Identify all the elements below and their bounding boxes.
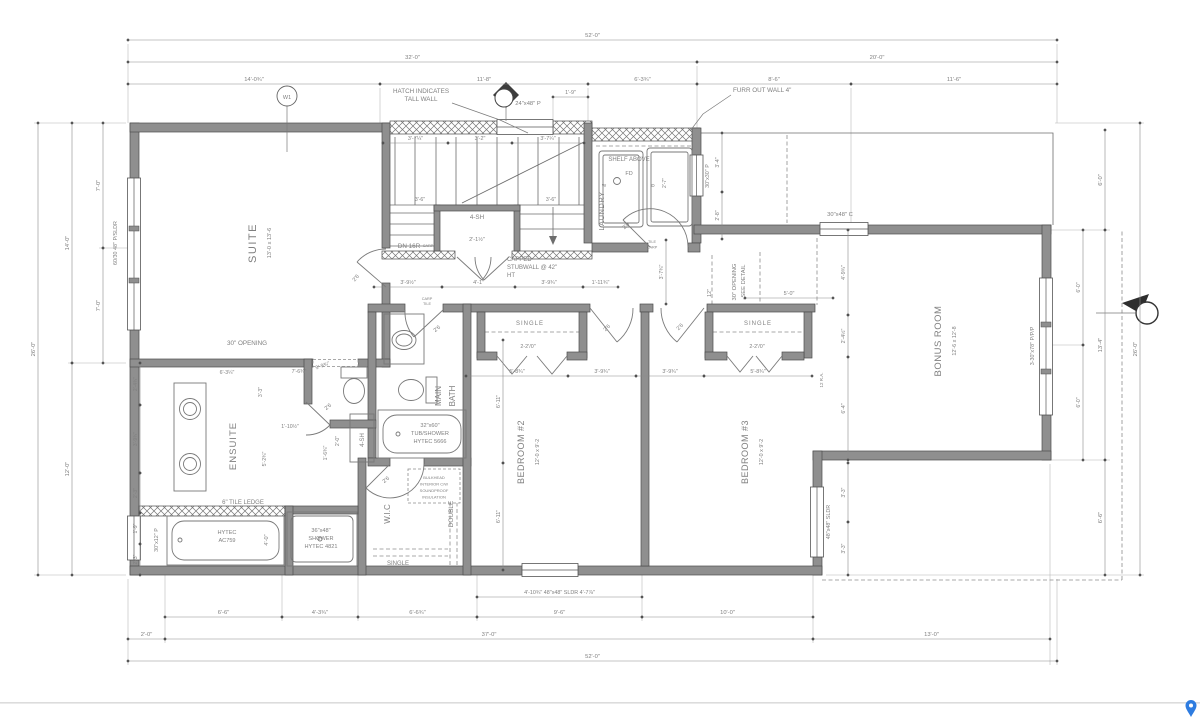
dim-label: 1'-9" <box>565 90 576 96</box>
tile-ledge <box>139 506 285 516</box>
window-stair <box>497 120 553 135</box>
dim-label: 26'-0" <box>1133 342 1139 357</box>
room-label-bedroom2: BEDROOM #2 <box>516 420 526 484</box>
dimension: 52'-0" <box>126 654 1058 662</box>
dimension: 5'-8¾" <box>464 369 569 377</box>
dim-label: 32'-0" <box>405 55 420 61</box>
room-label-wic: W.I.C <box>383 504 392 524</box>
dimension: 14'-0¾" <box>126 77 381 85</box>
dimension: 6'-0" <box>1076 228 1084 346</box>
dimension: 20'-0" <box>695 55 1058 63</box>
label-4sh-stair: 4-SH <box>470 214 485 221</box>
finish-carp-bath: CARP <box>422 297 433 301</box>
dim-label: 6'-0" <box>1076 282 1082 292</box>
door-label-wic: 2'6 <box>382 476 391 485</box>
dim-label: 6'-4" <box>841 403 847 413</box>
closet-label-single-bed3: SINGLE <box>744 321 772 327</box>
dim-label: 4'-10¾" 48"x48" SLDR 4'-7⅞" <box>524 590 595 596</box>
finish-carp-laundry: CARP <box>647 246 658 250</box>
stair-break-line <box>462 140 588 203</box>
dimension: 7'-0" <box>96 246 104 364</box>
fixture-tub-label-1: HYTEC <box>218 530 237 536</box>
dimension: 3'-3" <box>841 461 849 523</box>
dimension: 4'-9¾" <box>841 228 849 316</box>
dim-label: 6'-3¾" <box>634 77 650 83</box>
note-bonus-opening-2: -SEE DETAIL <box>741 264 747 300</box>
fixture-shower-label-1: 36"x48" <box>311 528 330 534</box>
dimension: 52'-0" <box>126 33 1058 41</box>
dim-ensuite-3: 7'-6¾" <box>292 369 307 375</box>
dim-tub-length: 4'-0" <box>264 534 270 545</box>
dimension: 5'-8¾" <box>702 369 813 377</box>
dimension: 3'-9¾" <box>513 280 584 288</box>
dimension: 6'-6¾" <box>356 610 478 618</box>
dim-label: 3'-9¾" <box>133 432 139 446</box>
dimension: 2'-4½" <box>840 313 849 358</box>
dim-label: 3'-7¼" <box>540 136 555 142</box>
room-label-main-bath-2: BATH <box>448 385 457 406</box>
dim-ensuite-1: 6'-3¼" <box>220 370 235 376</box>
note-capped-3: HT <box>507 273 515 279</box>
label-washer: W <box>602 183 607 188</box>
window-label-bonus-top: 30"x48" C <box>827 212 853 218</box>
dim-label: 2'-4½" <box>840 329 847 344</box>
label-4sh-ensuite: 4-SH <box>360 433 366 447</box>
dim-label: 2'-3" <box>133 554 139 564</box>
dim-label: 6'-6¾" <box>409 610 425 616</box>
dim-label: 6'-0" <box>1098 174 1104 186</box>
dim-label: 10'-0" <box>720 610 735 616</box>
dim-label: 2'-0" <box>141 632 153 638</box>
dim-stair-2: 3'-6" <box>546 197 556 203</box>
note-capped-1: CAPPED <box>507 257 532 263</box>
roof-outline <box>701 133 1053 225</box>
note-shelf-above: SHELF ABOVE <box>608 157 649 163</box>
window-label-tub: 30"x12" P <box>154 528 160 552</box>
dim-label: 8'-6" <box>768 77 780 83</box>
dim-label: 11'-6" <box>947 77 961 83</box>
dim-stair-1: 3'-6" <box>415 197 425 203</box>
fixture-shower-label-2: SHOWER <box>308 536 333 542</box>
dimension: 32'-0" <box>126 55 698 63</box>
dim-label: 3'-9¾" <box>662 369 677 375</box>
door-suite <box>357 249 386 287</box>
closet-doors-bed2: 2-2'/0" <box>520 344 535 350</box>
tall-wall-hatched <box>390 121 497 134</box>
dimension: 3'-4" <box>715 131 723 193</box>
dim-label: 6'-11" <box>496 395 502 408</box>
closet-label-single-wic: SINGLE <box>387 561 409 567</box>
dimension: 3'-9¾" <box>566 369 637 377</box>
dim-label: 5'-8¾" <box>750 369 765 375</box>
bifold-doors <box>497 356 782 374</box>
dimension: 6'-4" <box>841 355 849 461</box>
window-bed2-bottom <box>522 564 578 577</box>
dimension: 11'-6" <box>849 77 1058 85</box>
dimension: 9'-6" <box>475 610 643 618</box>
label-return-air: 12 R.A. <box>819 372 824 387</box>
room-label-laundry: LAUNDRY <box>597 191 606 230</box>
note-hatch-1: HATCH INDICATES <box>393 88 449 95</box>
dim-label: 13'-4" <box>1098 338 1104 353</box>
dimension: 7'-0" <box>96 121 104 249</box>
dimension: 3'-2" <box>446 136 513 144</box>
dim-label: 3'-4" <box>715 157 721 167</box>
room-size-bedroom3: 12'-0 x 9'-2 <box>759 439 765 465</box>
fixture-tubshower-label-2: TUB/SHOWER <box>411 431 449 437</box>
window-bonus-top <box>820 223 868 236</box>
note-hatch-2: TALL WALL <box>404 96 438 103</box>
room-size-suite: 13'-0 x 13'-6 <box>267 228 273 258</box>
dimension: 6'-6" <box>1098 458 1106 576</box>
window-label-stair: 24"x48" P <box>515 101 541 107</box>
room-label-main-bath-1: MAIN <box>434 386 443 406</box>
note-box-line-4: INSULATION <box>422 495 446 500</box>
fixture-tubshower-label-1: 32"x60" <box>420 423 439 429</box>
window-bed3 <box>811 487 824 557</box>
dimension: 3'-7¼" <box>381 136 449 144</box>
dim-label: 5'-8¾" <box>509 369 524 375</box>
tall-wall-hatched <box>592 128 700 141</box>
dimension: 26'-0" <box>31 121 39 576</box>
dim-label: 2'-3" <box>133 488 139 498</box>
dim-label: 7'-0" <box>96 180 102 192</box>
label-floor-drain: FD <box>625 171 632 177</box>
dim-label: 14'-0¾" <box>244 77 264 83</box>
dim-label: 4'-9¾" <box>841 265 847 280</box>
dim-label: 3'-3" <box>841 487 847 497</box>
dim-dryer-width: 2'-7" <box>662 178 668 188</box>
door-french-linen <box>457 257 509 280</box>
dimension: 3'-7¼" <box>510 136 585 144</box>
map-pin-icon[interactable] <box>1186 700 1197 717</box>
ensuite-toilet <box>341 367 367 404</box>
dim-ensuite-8: 1'-6¾" <box>323 446 329 461</box>
dim-label: 52'-0" <box>585 654 600 660</box>
floor-plan-sheet: 52'-0"32'-0"20'-0"14'-0¾"11'-8"6'-3¾"8'-… <box>0 0 1200 720</box>
note-30-opening: 30" OPENING <box>227 340 267 347</box>
dim-label: 37'-0" <box>482 632 497 638</box>
dim-label: 2'-8" <box>715 210 721 220</box>
finish-tile-laundry: TILE <box>648 240 656 244</box>
dimension: 6'-3¾" <box>586 77 698 85</box>
dim-label: 14'-0" <box>65 236 71 251</box>
dim-label: 3'-9¾" <box>594 369 609 375</box>
closet-label-double: DOUBLE <box>448 500 455 527</box>
window-suite <box>128 178 141 330</box>
dimension: 6'-0" <box>1076 343 1084 461</box>
note-furr: FURR OUT WALL 4" <box>733 87 791 94</box>
dimension: 4'-10¾" 48"x48" SLDR 4'-7⅞" <box>475 590 643 598</box>
dim-label: 6'-6" <box>1098 512 1104 524</box>
dimension: 1'-9" <box>551 90 589 98</box>
dim-label: 20'-0" <box>870 55 885 61</box>
dim-label: 6'-6" <box>218 610 230 616</box>
dim-ensuite-5: 1'-10½" <box>281 423 299 430</box>
door-label-suite: 2'6 <box>352 274 361 283</box>
dim-label: 13'-0" <box>924 632 939 638</box>
capped-stubwall <box>382 251 455 259</box>
text-labels: SUITE13'-0 x 13'-6ENSUITEMAINBATHW.I.CBE… <box>113 87 1036 567</box>
dimension: 10'-0" <box>640 610 814 618</box>
dimension: 13'-0" <box>811 632 1051 640</box>
finish-tile-bath: TILE <box>423 302 431 306</box>
door-bed2 <box>590 308 633 342</box>
door-label-bed3: 2'6 <box>676 323 685 332</box>
label-dryer: D <box>651 183 655 188</box>
label-dn-16r: DN 16R <box>398 243 421 250</box>
dim-ensuite-2: 3'-3" <box>258 387 264 397</box>
stairs <box>390 137 588 246</box>
dim-label: 4'-3¾" <box>312 610 328 616</box>
dimension: 8'-6" <box>695 77 852 85</box>
dimension: 1'-11¾" <box>581 280 619 288</box>
room-label-bedroom3: BEDROOM #3 <box>740 420 750 484</box>
fixture-tub-label-2: AC759 <box>218 538 235 544</box>
dimension: 26'-0" <box>1133 121 1141 576</box>
dimension: 11'-8" <box>378 77 589 85</box>
dim-label: 7'-0" <box>96 300 102 312</box>
dim-label: 3'-7¾" <box>659 265 665 280</box>
room-label-suite: SUITE <box>247 223 259 263</box>
dim-label: 4'-1" <box>473 280 484 286</box>
dim-ensuite-7: 2'-0" <box>335 436 341 446</box>
dim-label: 2'-4¾" <box>133 377 139 391</box>
dim-label: 3'-2" <box>475 136 486 142</box>
note-tile-ledge: 6" TILE LEDGE <box>222 500 264 506</box>
dimension: 4'-1" <box>440 280 516 288</box>
dim-label: 12'-0" <box>65 462 71 477</box>
note-capped-2: STUBWALL @ 42" <box>507 265 557 271</box>
note-box-line-3: SOUNDPROOF <box>420 488 449 493</box>
dim-label: 1'-9" <box>133 523 139 533</box>
finish-carp-stair: CARP <box>423 244 434 248</box>
dimension: 6'-11" <box>496 461 504 571</box>
floor-plan-canvas: 52'-0"32'-0"20'-0"14'-0¾"11'-8"6'-3¾"8'-… <box>0 0 1200 720</box>
dimension: 4'-3¾" <box>280 610 359 618</box>
note-bonus-opening-1: 30" OPENING <box>732 263 738 300</box>
bath-toilet <box>399 377 438 403</box>
dimension: 13'-4" <box>1098 228 1106 461</box>
dimension: 6'-0" <box>1098 128 1106 231</box>
note-box-line-2: INTERIOR C/W <box>420 482 448 487</box>
dim-label: 3'-9¾" <box>541 280 556 286</box>
dim-label: 11'-8" <box>477 77 491 83</box>
walls-interior <box>130 123 815 575</box>
dimension: 6'-6" <box>163 610 283 618</box>
door-label-bath: 2'6 <box>433 325 442 334</box>
dim-label: 5'-0" <box>784 291 795 297</box>
fixture-shower-label-3: HYTEC 4821 <box>305 544 338 550</box>
note-box-line-1: BULKHEAD <box>423 475 445 480</box>
sheet-edge-line <box>0 702 1200 704</box>
ensuite-vanity <box>174 383 206 491</box>
dimension: 37'-0" <box>163 632 814 640</box>
window-tub <box>128 516 141 560</box>
window-bonus-right <box>1040 278 1053 415</box>
dim-ensuite-6: 5'-2¾" <box>262 452 268 467</box>
dimension: 3'-7¾" <box>659 238 667 305</box>
dim-label: 3'-7¼" <box>408 136 423 142</box>
dim-label: 9'-6" <box>554 610 566 616</box>
dim-opening-12: 12" <box>707 289 713 297</box>
dim-label: 26'-0" <box>31 342 37 357</box>
room-size-bedroom2: 12'-0 x 9'-2 <box>535 439 541 465</box>
window-label-suite: 60/30 48" P/SLDR <box>113 221 119 265</box>
dim-label: 3'-9½" <box>400 279 415 286</box>
dim-label: 6'-0" <box>1076 397 1082 407</box>
window-label-bonus-right: 3-30"x78" P/P/P <box>1030 326 1036 365</box>
floor-drain <box>614 178 621 185</box>
room-label-bonus: BONUS ROOM <box>933 306 944 377</box>
dimension: 12'-0" <box>65 361 73 576</box>
dimension: 2'-0" <box>126 632 166 640</box>
room-size-bonus: 12'-6 x 12'-8 <box>952 326 958 355</box>
window-label-laundry: 30"x30" P <box>705 164 711 188</box>
fixture-tubshower-label-3: HYTEC 5666 <box>414 439 447 445</box>
closet-doors-bed3: 2-2'/0" <box>749 344 764 350</box>
dimension: 3'-3" <box>841 520 849 576</box>
door-label-wc: 2'6 <box>324 403 333 412</box>
room-label-ensuite: ENSUITE <box>228 422 239 470</box>
dimension: 14'-0" <box>65 121 73 364</box>
dim-label: 1'-11¾" <box>592 280 610 286</box>
window-label-bed3: 48"x48" SLDR <box>826 505 832 539</box>
dim-label: 6'-11" <box>496 510 502 523</box>
dim-label: 52'-0" <box>585 33 600 39</box>
dimension: 5'-0" <box>743 291 834 299</box>
dim-label: 3'-3" <box>841 543 847 553</box>
closet-label-single-bed2: SINGLE <box>516 321 544 327</box>
keynote-w1-label: W1 <box>283 95 291 101</box>
dim-closet-depth: 2'-1½" <box>469 236 485 243</box>
